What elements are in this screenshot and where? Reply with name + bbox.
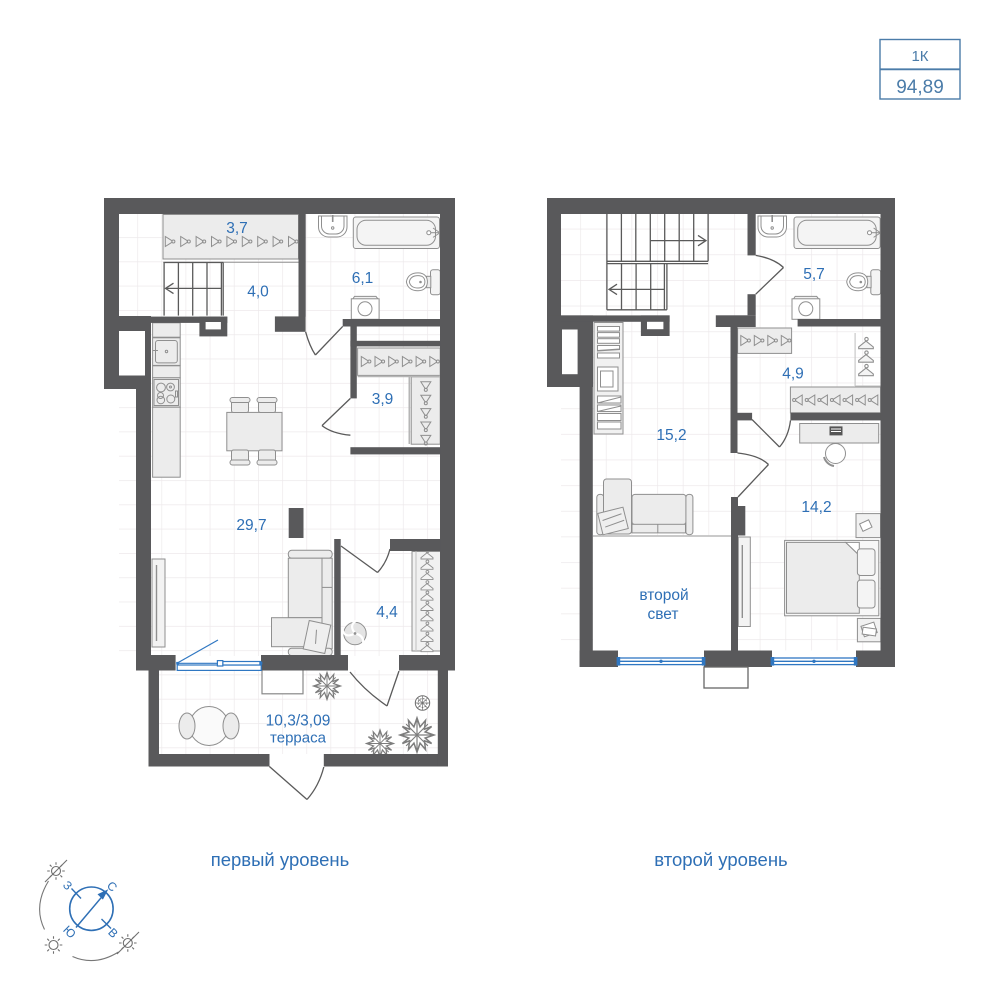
svg-text:4,0: 4,0 [247, 284, 269, 301]
svg-text:29,7: 29,7 [236, 517, 266, 534]
svg-text:6,1: 6,1 [352, 270, 374, 287]
svg-text:первый уровень: первый уровень [211, 849, 350, 870]
svg-text:94,89: 94,89 [896, 77, 944, 98]
svg-text:1К: 1К [911, 48, 928, 65]
svg-text:второй: второй [639, 587, 688, 604]
svg-text:второй уровень: второй уровень [654, 849, 787, 870]
svg-text:15,2: 15,2 [656, 427, 686, 444]
svg-text:свет: свет [647, 606, 678, 623]
svg-text:3,7: 3,7 [226, 220, 248, 237]
svg-text:14,2: 14,2 [801, 499, 831, 516]
svg-text:терраса: терраса [270, 730, 327, 747]
svg-text:4,4: 4,4 [376, 604, 398, 621]
svg-text:5,7: 5,7 [803, 266, 825, 283]
svg-text:3,9: 3,9 [372, 391, 394, 408]
svg-text:10,3/3,09: 10,3/3,09 [266, 713, 331, 730]
svg-text:4,9: 4,9 [782, 366, 804, 383]
